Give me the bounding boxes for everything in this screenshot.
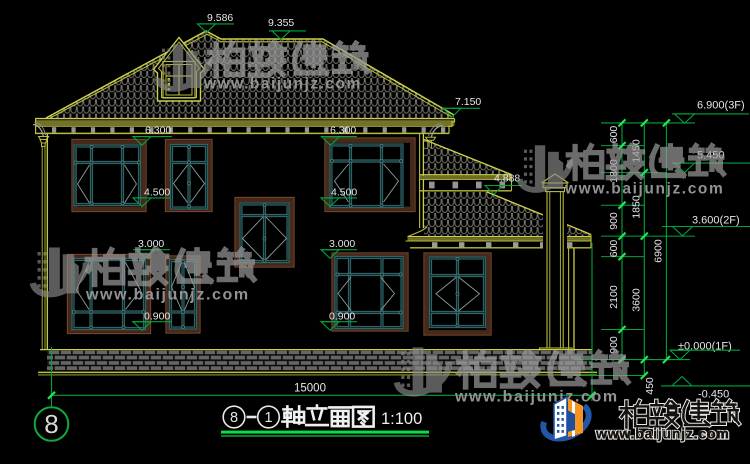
svg-text:3.000: 3.000 xyxy=(138,238,164,250)
svg-text:www.baijunjz.com: www.baijunjz.com xyxy=(564,181,724,198)
svg-text:www.baijunjz.com: www.baijunjz.com xyxy=(203,76,362,93)
svg-text:2100: 2100 xyxy=(608,285,620,309)
svg-text:4.500: 4.500 xyxy=(144,187,170,199)
svg-text:4.500: 4.500 xyxy=(331,187,357,199)
svg-text:4.888: 4.888 xyxy=(494,172,520,184)
svg-text:600: 600 xyxy=(608,240,620,258)
svg-text:1850: 1850 xyxy=(631,195,643,219)
svg-text:1:100: 1:100 xyxy=(381,410,422,428)
svg-text:3600: 3600 xyxy=(631,288,643,312)
svg-text:www.baijunjz.com: www.baijunjz.com xyxy=(454,389,619,406)
svg-text:9.586: 9.586 xyxy=(207,12,233,24)
svg-text:1: 1 xyxy=(264,410,272,426)
svg-text:www.baijunjz.com: www.baijunjz.com xyxy=(85,287,250,304)
svg-text:3.000: 3.000 xyxy=(329,238,355,250)
svg-text:0.900: 0.900 xyxy=(144,311,170,323)
svg-text:6900: 6900 xyxy=(653,239,665,263)
svg-text:15000: 15000 xyxy=(294,383,326,395)
svg-text:8: 8 xyxy=(44,409,58,439)
svg-text:8: 8 xyxy=(230,410,238,426)
svg-text:6.900(3F): 6.900(3F) xyxy=(697,100,745,112)
svg-text:900: 900 xyxy=(608,212,620,230)
svg-text:3.600(2F): 3.600(2F) xyxy=(692,215,740,227)
svg-text:www.baijunjz.com: www.baijunjz.com xyxy=(595,427,729,443)
svg-text:6.300: 6.300 xyxy=(145,125,171,137)
svg-text:0.900: 0.900 xyxy=(329,311,355,323)
svg-text:-0.450: -0.450 xyxy=(698,389,729,401)
svg-text:9.355: 9.355 xyxy=(268,17,294,29)
svg-text:450: 450 xyxy=(644,377,656,395)
svg-text:7.150: 7.150 xyxy=(455,96,481,108)
svg-text:600: 600 xyxy=(608,126,620,144)
svg-text:6.300: 6.300 xyxy=(330,125,356,137)
